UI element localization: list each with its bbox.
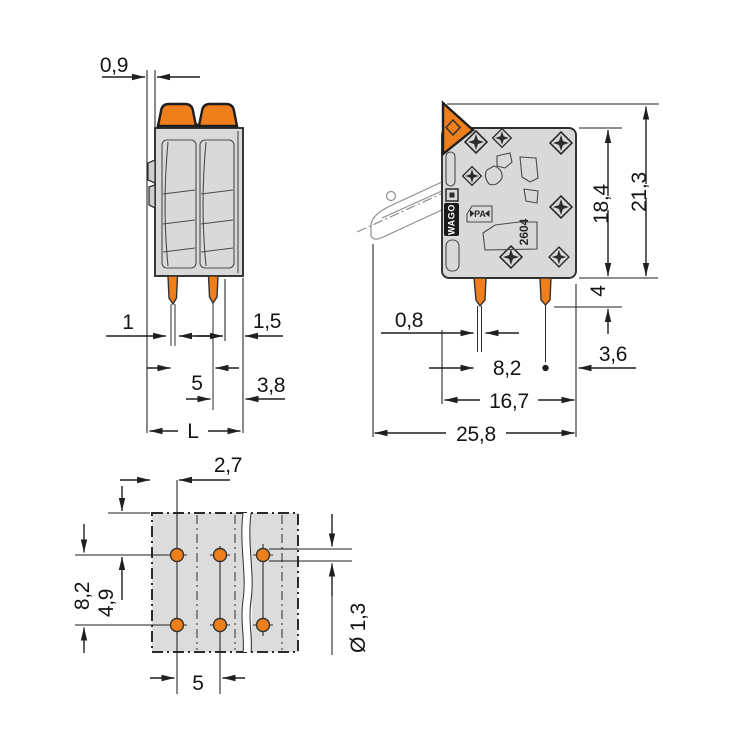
fp-dim-pitch-label: 5 xyxy=(192,672,203,695)
ghost-lever xyxy=(357,181,452,239)
side-solder-pin-2 xyxy=(540,278,551,305)
front-dim-pin-width-label: 1 xyxy=(122,311,133,334)
front-dim-edge-label: 3,8 xyxy=(257,374,285,397)
dimension-reference-dot xyxy=(542,365,548,371)
drawing-canvas: 0,9 1 1,5 5 3,8 L xyxy=(0,0,750,750)
side-dim-pin-thickness-label: 0,8 xyxy=(395,309,423,332)
footprint-view: 2,7 4,9 8,2 5 Ø 1,3 xyxy=(71,454,370,695)
series-label: 2604 xyxy=(517,218,531,245)
side-dim-edge-label: 3,6 xyxy=(599,343,627,366)
side-dim-body-height-label: 18,4 xyxy=(590,184,613,224)
fp-dim-row-spacing-label: 8,2 xyxy=(71,582,94,610)
side-dim-total-depth-label: 25,8 xyxy=(456,423,496,446)
solder-pin-1 xyxy=(168,276,178,304)
front-dim-latch-offset-label: 0,9 xyxy=(100,54,128,77)
side-dim-total-height-label: 21,3 xyxy=(628,172,651,212)
side-dim-pin-length-label: 4 xyxy=(587,285,610,297)
technical-drawing-page: 0,9 1 1,5 5 3,8 L xyxy=(0,0,750,750)
mounting-latch xyxy=(148,160,155,208)
brand-label: WAGO xyxy=(447,204,457,235)
lever-hole xyxy=(387,192,396,201)
front-dim-length-label: L xyxy=(187,420,198,443)
front-dim-pitch-label: 5 xyxy=(191,372,202,395)
terminal-front-body xyxy=(148,104,243,410)
solder-pin-2 xyxy=(209,276,219,303)
push-button-1 xyxy=(158,104,196,126)
side-dim-body-depth-label: 16,7 xyxy=(489,390,529,413)
push-button-2 xyxy=(199,104,237,126)
terminal-side-body: WAGO PA 2604 xyxy=(442,103,576,371)
side-view: WAGO PA 2604 18,4 21,3 xyxy=(357,103,659,446)
fp-dim-edge-row-label: 4,9 xyxy=(95,589,118,617)
front-dim-right-wall-label: 1,5 xyxy=(253,310,281,333)
front-view: 0,9 1 1,5 5 3,8 L xyxy=(100,54,285,443)
side-dim-row-spacing-label: 8,2 xyxy=(493,357,521,380)
side-solder-pin-1 xyxy=(474,278,486,306)
material-label: PA xyxy=(474,209,486,219)
fp-dim-hole-dia-label: Ø 1,3 xyxy=(347,603,370,653)
fp-dim-edge-col-label: 2,7 xyxy=(214,454,242,477)
